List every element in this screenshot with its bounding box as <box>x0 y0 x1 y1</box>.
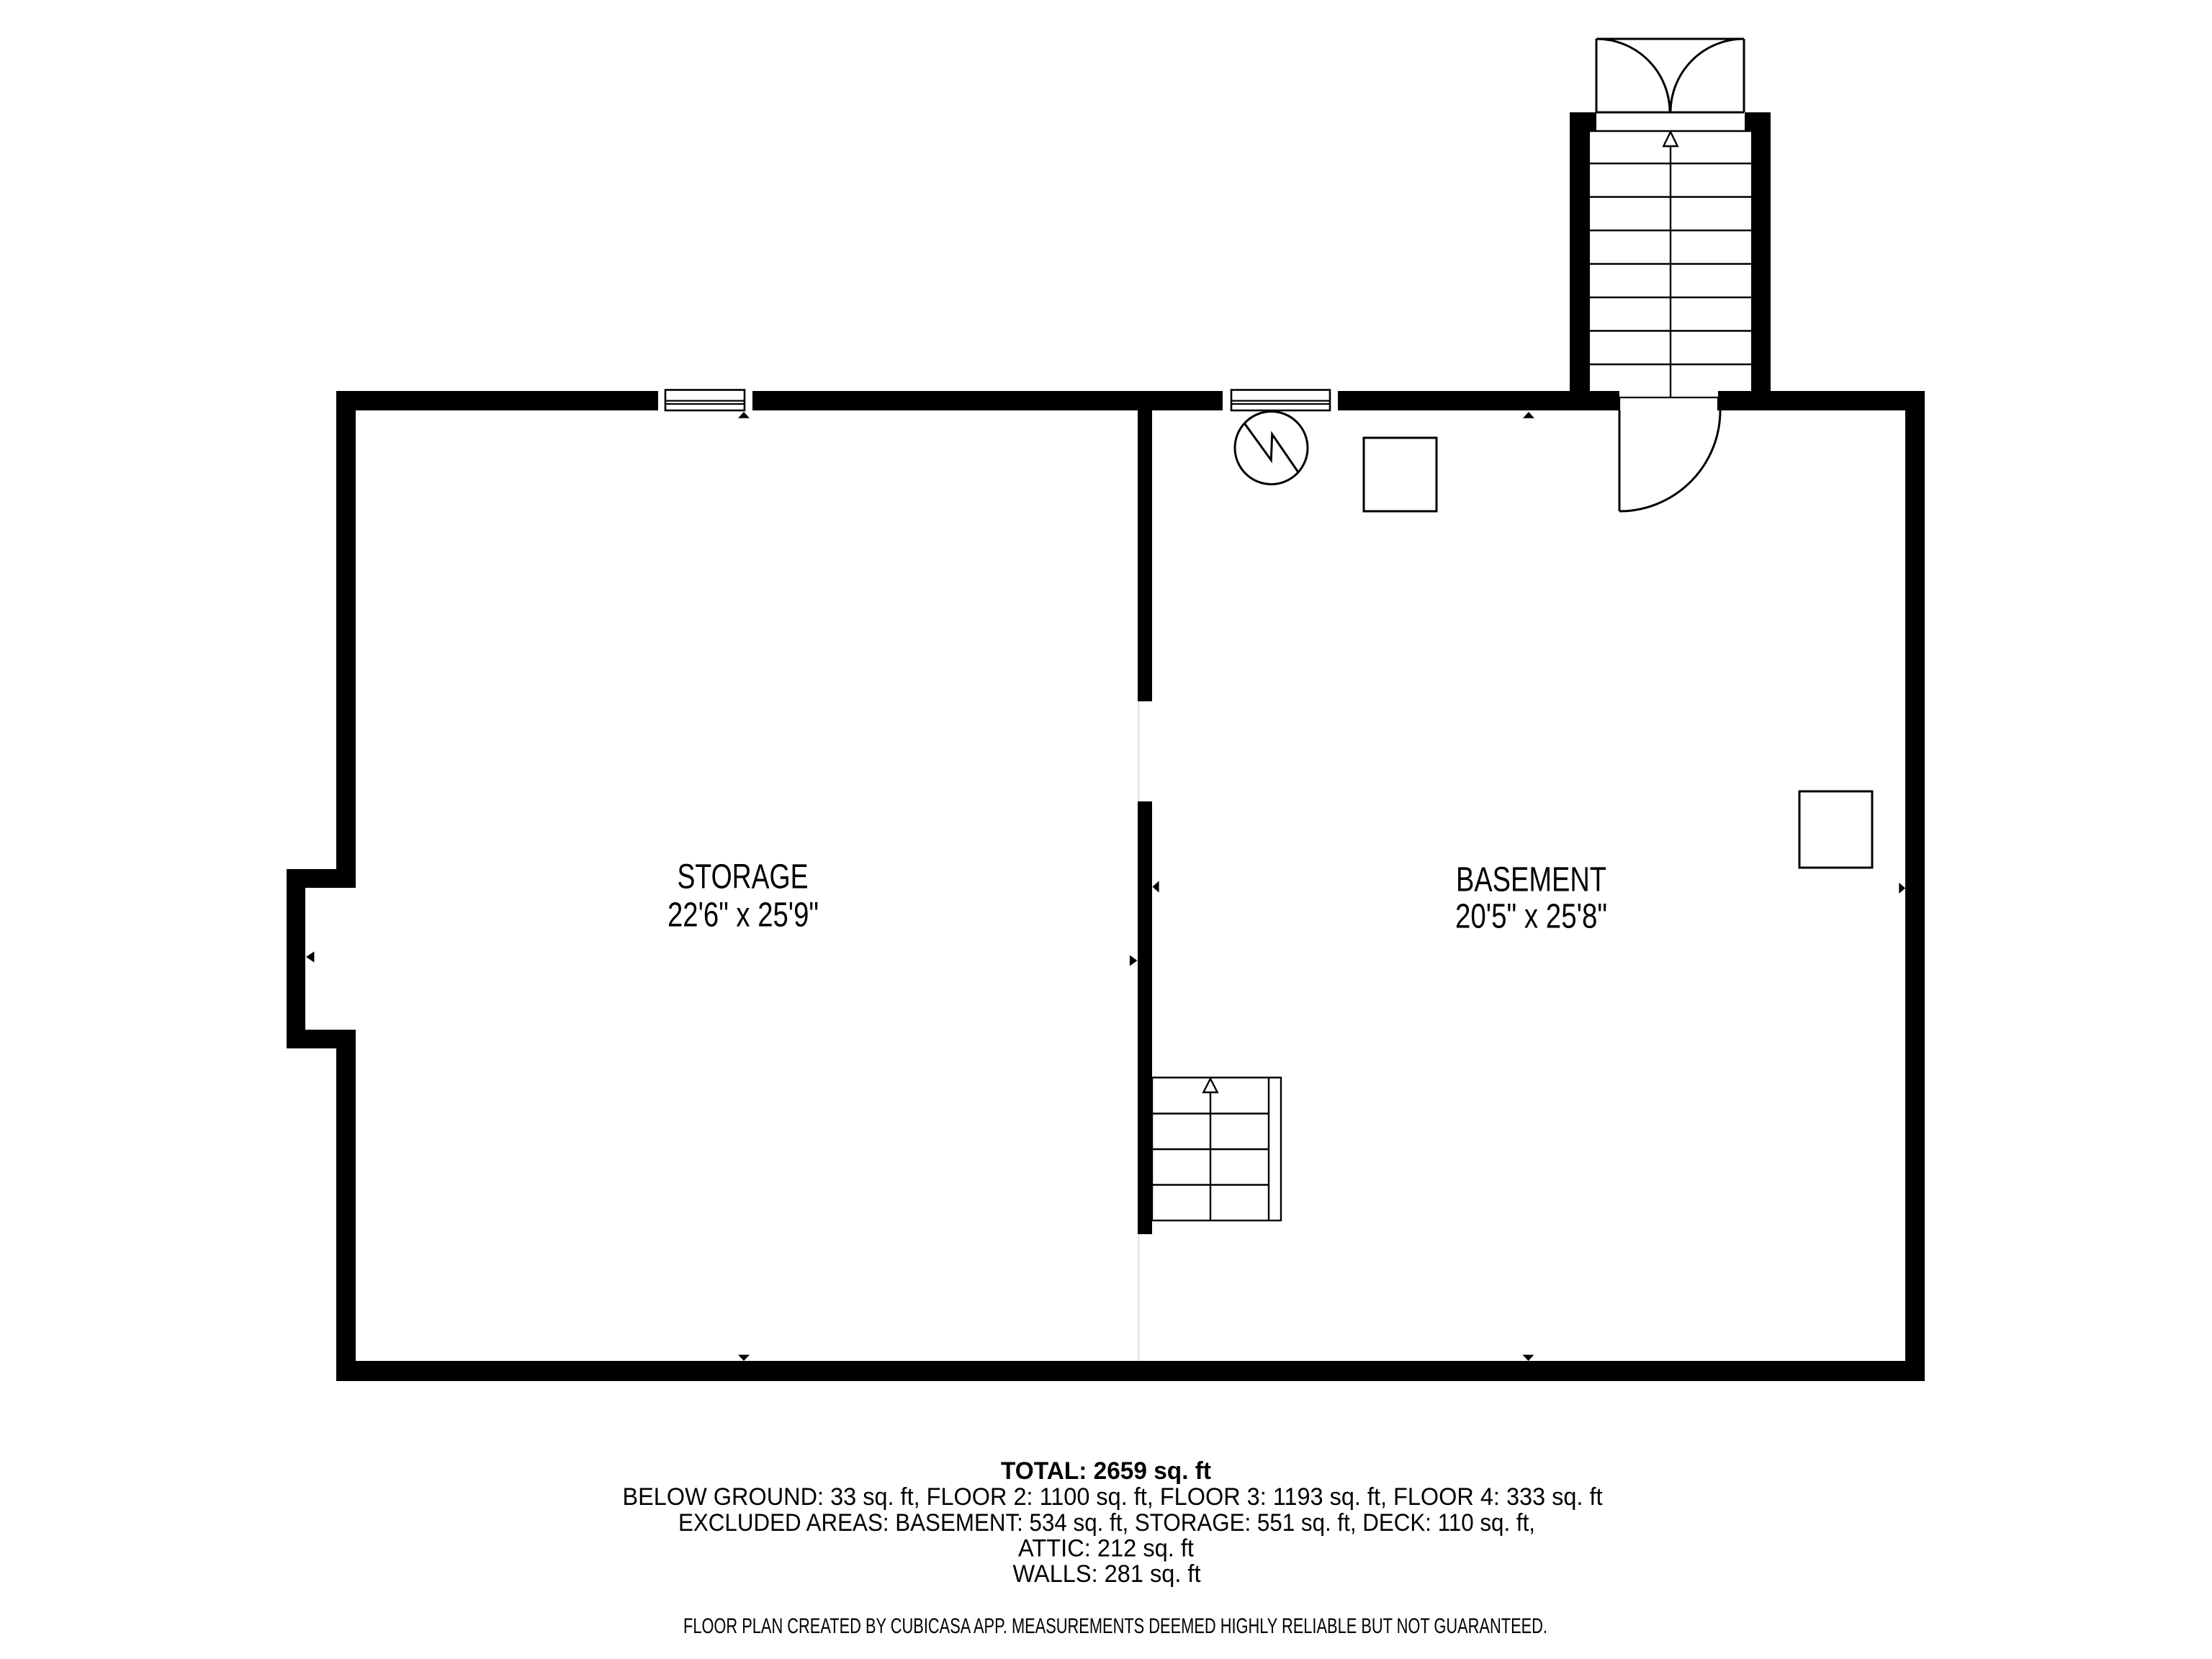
svg-text:22'6" x 25'9": 22'6" x 25'9" <box>667 896 819 935</box>
svg-text:WALLS: 281 sq. ft: WALLS: 281 sq. ft <box>1013 1560 1201 1588</box>
svg-text:EXCLUDED AREAS: BASEMENT: 534: EXCLUDED AREAS: BASEMENT: 534 sq. ft, ST… <box>678 1509 1535 1537</box>
svg-text:FLOOR PLAN CREATED BY CUBICASA: FLOOR PLAN CREATED BY CUBICASA APP. MEAS… <box>683 1614 1547 1638</box>
svg-text:BASEMENT: BASEMENT <box>1456 861 1606 899</box>
svg-text:STORAGE: STORAGE <box>678 858 809 896</box>
svg-text:20'5" x 25'8": 20'5" x 25'8" <box>1455 898 1607 936</box>
svg-text:ATTIC: 212 sq. ft: ATTIC: 212 sq. ft <box>1018 1535 1194 1563</box>
svg-text:TOTAL: 2659 sq. ft: TOTAL: 2659 sq. ft <box>1001 1457 1211 1485</box>
svg-text:BELOW GROUND: 33 sq. ft, FLOOR: BELOW GROUND: 33 sq. ft, FLOOR 2: 1100 s… <box>623 1483 1603 1511</box>
